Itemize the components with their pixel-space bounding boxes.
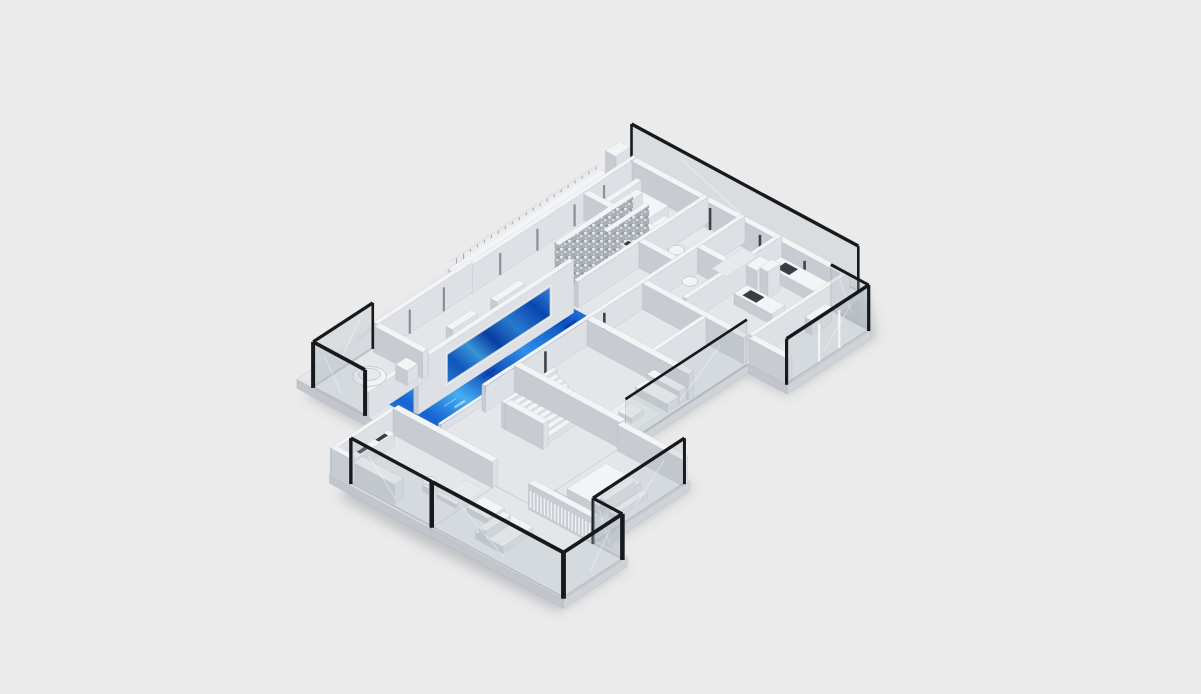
isometric-floorplan [0, 0, 1201, 694]
kitchen-tall-unit [760, 259, 780, 298]
toilet [682, 276, 698, 286]
floorplan-scene [297, 124, 877, 612]
screenshot-canvas [0, 0, 1201, 694]
